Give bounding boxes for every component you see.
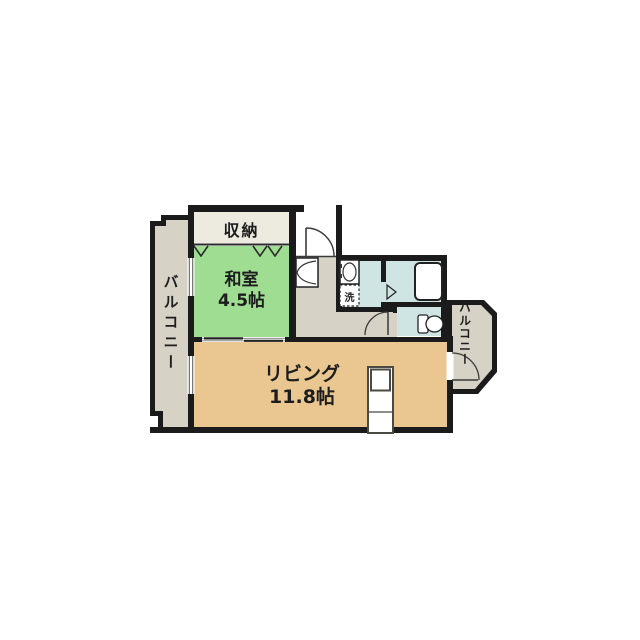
balcony-right-label: バルコニー <box>454 301 476 393</box>
floor-plan-drawing <box>0 0 640 640</box>
floor-plan: 収納 和室4.5帖 リビング11.8帖 バルコニー バルコニー 洗 <box>0 0 640 640</box>
living-room-size: 11.8帖 <box>269 386 335 408</box>
entry-closet-bifold-doors <box>296 258 318 287</box>
japanese-room-name: 和室 <box>225 270 259 290</box>
balcony-left-label: バルコニー <box>157 224 185 424</box>
living-room-label: リビング11.8帖 <box>222 363 382 409</box>
entrance-area <box>296 212 337 257</box>
bathtub <box>415 263 442 300</box>
storage-label: 収納 <box>194 217 289 241</box>
living-room-name: リビング <box>264 363 340 385</box>
toilet <box>418 315 443 333</box>
sliding-door-track <box>202 337 285 342</box>
washing-machine-label: 洗 <box>340 289 359 304</box>
japanese-room-size: 4.5帖 <box>218 291 265 311</box>
washbasin <box>340 260 360 284</box>
japanese-room-label: 和室4.5帖 <box>194 270 289 312</box>
